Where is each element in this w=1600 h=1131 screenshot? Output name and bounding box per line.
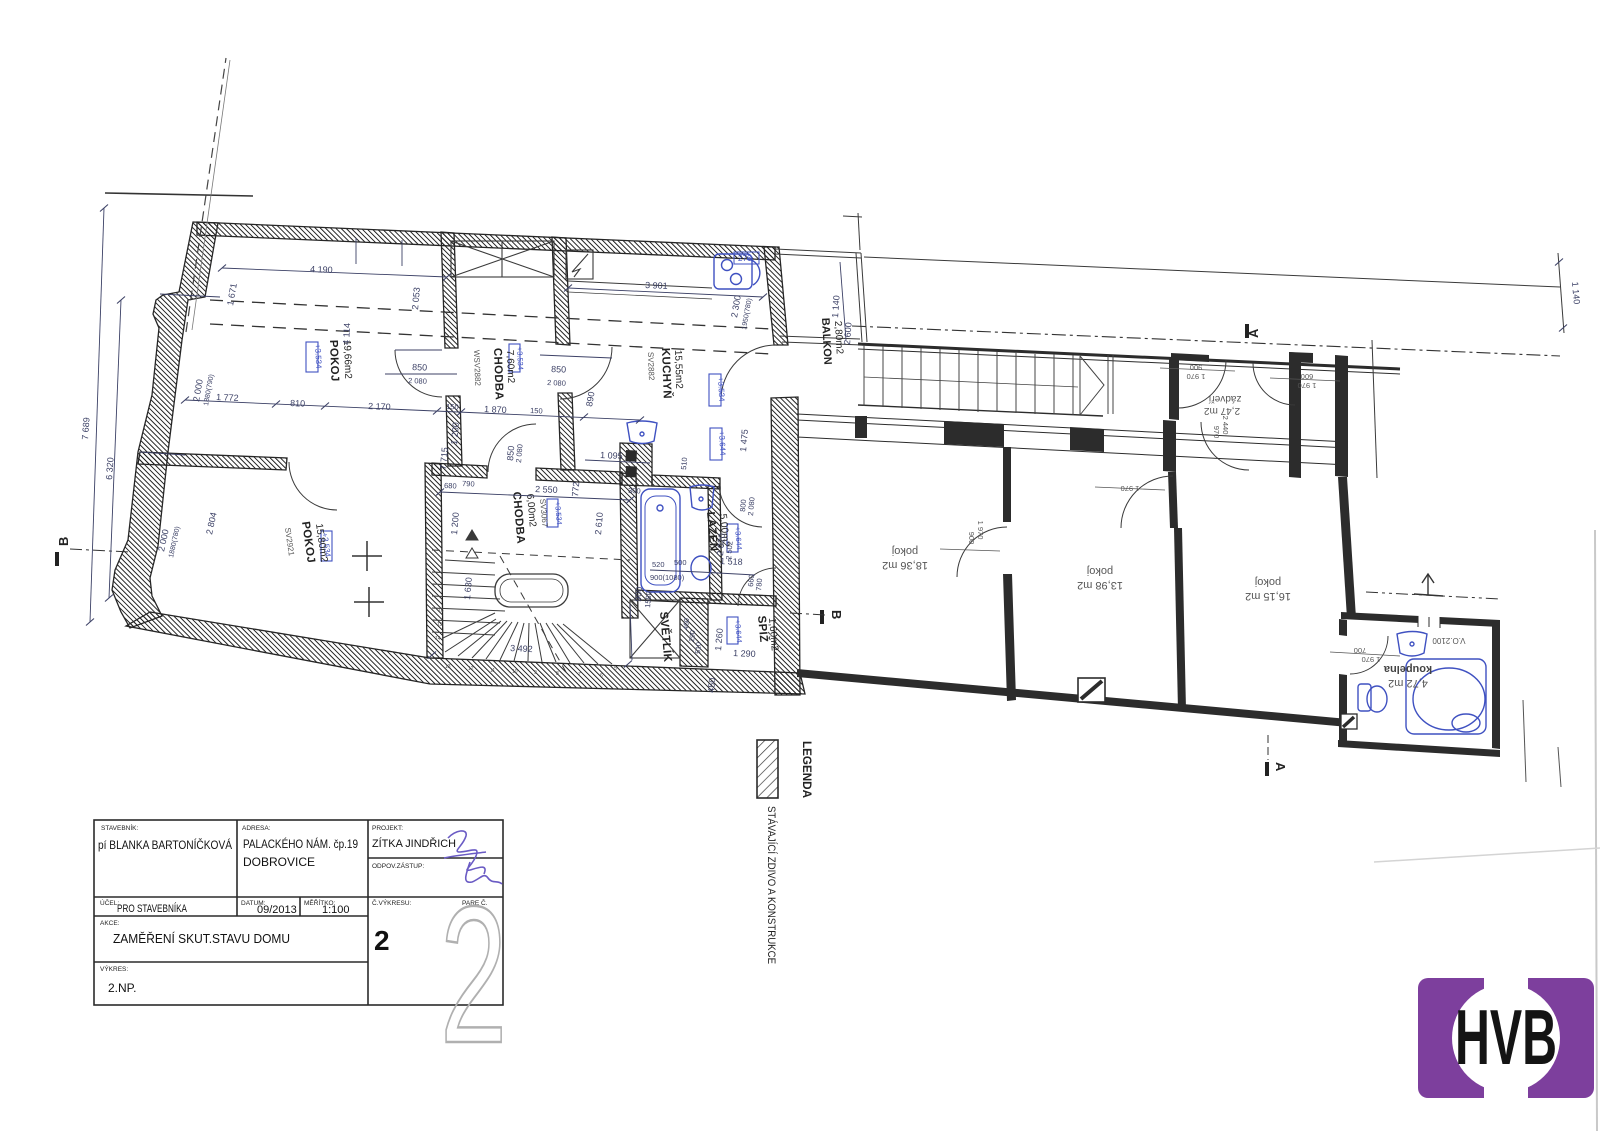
svg-text:09/2013: 09/2013	[257, 904, 297, 916]
svg-text:900: 900	[1190, 363, 1203, 372]
svg-text:pokoj: pokoj	[1087, 565, 1113, 577]
svg-text:14: 14	[435, 636, 441, 642]
svg-text:A: A	[1273, 762, 1288, 772]
svg-text:1 140: 1 140	[1570, 281, 1582, 304]
svg-text:15: 15	[437, 622, 443, 628]
svg-text:B: B	[829, 610, 844, 619]
svg-text:Č.VÝKRESU:: Č.VÝKRESU:	[372, 898, 412, 907]
svg-text:1 095: 1 095	[600, 450, 623, 461]
svg-text:900: 900	[967, 532, 976, 545]
svg-text:2: 2	[374, 925, 390, 956]
svg-text:772: 772	[570, 481, 581, 497]
svg-text:CHODBA: CHODBA	[491, 348, 505, 401]
svg-text:pokoj: pokoj	[892, 545, 918, 557]
svg-text:900: 900	[633, 586, 644, 602]
svg-text:WSV2882: WSV2882	[472, 350, 482, 387]
svg-text:3 901: 3 901	[645, 280, 668, 291]
svg-text:1 200: 1 200	[449, 422, 461, 445]
svg-text:16,15 m2: 16,15 m2	[1245, 590, 1291, 602]
svg-text:6: 6	[600, 673, 603, 679]
svg-text:13: 13	[445, 664, 451, 670]
svg-text:2 600: 2 600	[842, 322, 854, 345]
svg-text:+3.534: +3.534	[716, 377, 726, 403]
svg-text:510: 510	[695, 642, 703, 654]
svg-text:ZAMĚŘENÍ SKUT.STAVU DOMU: ZAMĚŘENÍ SKUT.STAVU DOMU	[113, 931, 290, 946]
svg-text:HVB: HVB	[1455, 993, 1557, 1081]
svg-text:BALKON: BALKON	[819, 318, 833, 366]
svg-text:1 200: 1 200	[449, 512, 461, 535]
svg-text:2.NP.: 2.NP.	[108, 981, 136, 995]
svg-text:1 870: 1 870	[484, 404, 507, 415]
svg-text:2 080: 2 080	[514, 444, 525, 463]
svg-text:290: 290	[689, 630, 697, 642]
svg-text:450: 450	[706, 677, 717, 693]
svg-text:1 970: 1 970	[1187, 372, 1206, 381]
svg-text:+3.534: +3.534	[313, 344, 323, 370]
svg-text:1 970: 1 970	[1298, 381, 1317, 390]
svg-text:B: B	[56, 537, 71, 546]
svg-text:11: 11	[490, 668, 495, 674]
svg-text:276: 276	[738, 254, 752, 263]
svg-text:7 689: 7 689	[80, 417, 92, 440]
svg-text:zádveří: zádveří	[1208, 393, 1241, 404]
svg-text:810: 810	[290, 398, 305, 409]
svg-text:13,98 m2: 13,98 m2	[1077, 579, 1123, 591]
svg-text:SV2882: SV2882	[646, 352, 656, 381]
svg-text:ODPOV.ZÁSTUP:: ODPOV.ZÁSTUP:	[372, 861, 424, 870]
svg-text:KUCHYŇ: KUCHYŇ	[659, 348, 674, 399]
svg-text:V.O.2100: V.O.2100	[1432, 636, 1466, 645]
svg-text:5: 5	[614, 666, 617, 672]
svg-text:15,55m2: 15,55m2	[672, 350, 684, 390]
svg-text:STÁVAJÍCÍ ZDIVO A KONSTRUKCE: STÁVAJÍCÍ ZDIVO A KONSTRUKCE	[765, 806, 778, 964]
svg-text:2 053: 2 053	[410, 287, 422, 310]
svg-text:PROJEKT:: PROJEKT:	[372, 825, 403, 832]
svg-text:460: 460	[683, 618, 691, 630]
svg-text:pokoj: pokoj	[1255, 576, 1281, 588]
svg-text:2,47 m2: 2,47 m2	[1203, 405, 1240, 416]
svg-text:PRO STAVEBNÍKA: PRO STAVEBNÍKA	[117, 902, 187, 915]
svg-text:1 630: 1 630	[462, 577, 474, 600]
svg-text:150: 150	[446, 402, 459, 412]
svg-text:+3.644: +3.644	[717, 431, 727, 457]
svg-text:7: 7	[578, 672, 581, 678]
svg-text:2 080: 2 080	[746, 497, 757, 516]
svg-text:ADRESA:: ADRESA:	[242, 825, 271, 832]
svg-text:1580: 1580	[643, 591, 653, 608]
svg-text:900(1080): 900(1080)	[650, 573, 685, 582]
svg-text:7 715: 7 715	[438, 447, 450, 470]
svg-text:6 320: 6 320	[104, 457, 116, 480]
svg-text:POKOJ: POKOJ	[327, 340, 340, 382]
svg-text:1 970: 1 970	[1362, 655, 1381, 664]
svg-text:1 772: 1 772	[216, 392, 239, 403]
svg-text:150: 150	[530, 406, 543, 416]
svg-text:790: 790	[462, 479, 475, 489]
svg-text:850: 850	[551, 364, 566, 375]
svg-text:1 970: 1 970	[976, 521, 985, 540]
svg-text:16: 16	[438, 608, 444, 614]
svg-text:12: 12	[468, 666, 474, 672]
svg-text:2 440: 2 440	[1221, 416, 1230, 435]
svg-text:1 290: 1 290	[733, 648, 756, 659]
svg-text:2 550: 2 550	[535, 484, 558, 495]
svg-text:1:100: 1:100	[322, 904, 350, 916]
svg-text:4 114: 4 114	[341, 323, 352, 345]
svg-text:780: 780	[754, 578, 764, 591]
svg-text:8: 8	[556, 671, 559, 677]
svg-text:2 170: 2 170	[368, 401, 391, 412]
svg-text:1 518: 1 518	[720, 556, 743, 567]
svg-text:VÝKRES:: VÝKRES:	[100, 964, 128, 973]
svg-text:9: 9	[534, 670, 537, 676]
svg-text:4,72 m2: 4,72 m2	[1388, 677, 1428, 689]
svg-text:300: 300	[628, 486, 641, 496]
svg-text:STAVEBNÍK:: STAVEBNÍK:	[101, 823, 139, 832]
svg-text:ZÍTKA JINDŘICH: ZÍTKA JINDŘICH	[372, 837, 456, 850]
svg-text:LEGENDA: LEGENDA	[800, 741, 814, 798]
svg-text:2: 2	[440, 867, 507, 1085]
svg-text:DOBROVICE: DOBROVICE	[243, 855, 315, 869]
svg-text:2 080: 2 080	[547, 378, 566, 388]
svg-text:1 475: 1 475	[738, 429, 750, 452]
svg-text:500: 500	[674, 558, 687, 567]
svg-text:2 610: 2 610	[593, 512, 605, 535]
svg-text:4 190: 4 190	[310, 264, 333, 275]
svg-text:PALACKÉHO NÁM. čp.19: PALACKÉHO NÁM. čp.19	[243, 836, 358, 851]
svg-text:2 080: 2 080	[408, 376, 427, 386]
svg-text:1 260: 1 260	[713, 628, 725, 651]
svg-text:pí BLANKA BARTONÍČKOVÁ: pí BLANKA BARTONÍČKOVÁ	[98, 837, 232, 852]
svg-text:510: 510	[679, 457, 689, 470]
svg-text:850: 850	[412, 362, 427, 373]
svg-text:koupelna: koupelna	[1383, 663, 1432, 675]
svg-text:3 492: 3 492	[510, 643, 533, 654]
svg-text:10: 10	[512, 669, 518, 675]
svg-text:680: 680	[444, 481, 457, 491]
svg-text:1 140: 1 140	[830, 295, 842, 318]
svg-text:520: 520	[652, 560, 665, 569]
svg-text:970: 970	[1212, 426, 1221, 439]
svg-text:7,60m2: 7,60m2	[504, 350, 516, 384]
svg-text:18,36 m2: 18,36 m2	[882, 559, 928, 571]
svg-text:AKCE:: AKCE:	[100, 920, 120, 927]
